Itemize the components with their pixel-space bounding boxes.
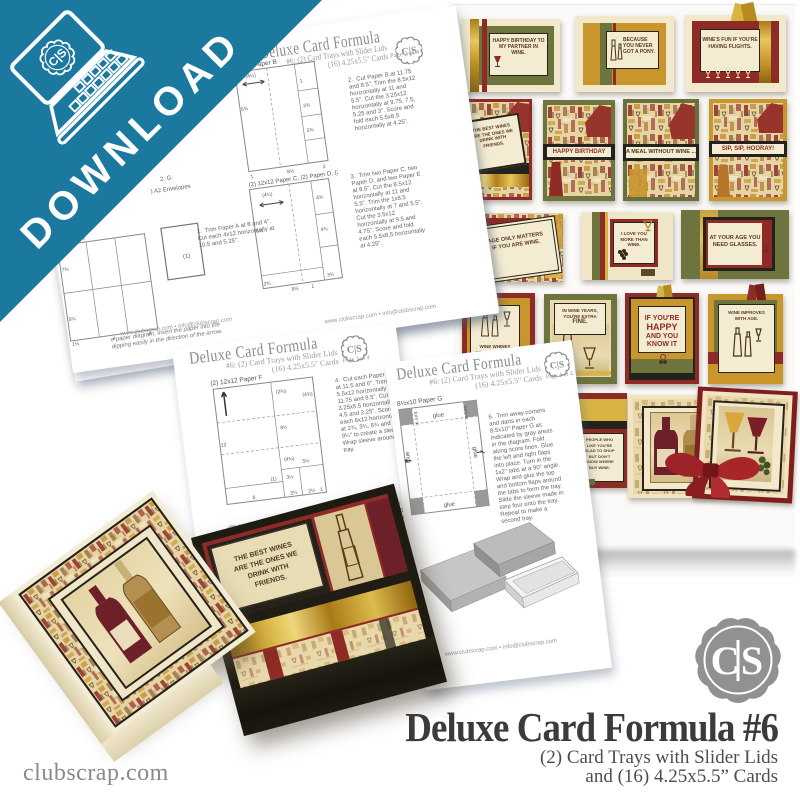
svg-text:2¼: 2¼	[290, 490, 298, 497]
svg-text:glue: glue	[443, 501, 456, 508]
svg-text:C: C	[711, 638, 740, 683]
svg-text:glue: glue	[433, 412, 446, 419]
svg-text:2½: 2½	[308, 487, 317, 495]
svg-text:C|S: C|S	[549, 359, 565, 372]
svg-text:8: 8	[252, 495, 256, 501]
svg-text:8½: 8½	[280, 423, 289, 431]
svg-text:5½: 5½	[302, 457, 311, 465]
svg-text:(1): (1)	[270, 476, 277, 483]
svg-text:12: 12	[221, 442, 227, 449]
svg-text:(4¾): (4¾)	[284, 456, 295, 463]
svg-text:S: S	[741, 638, 763, 683]
svg-text:3¼: 3¼	[286, 474, 294, 481]
svg-text:1: 1	[320, 487, 324, 493]
